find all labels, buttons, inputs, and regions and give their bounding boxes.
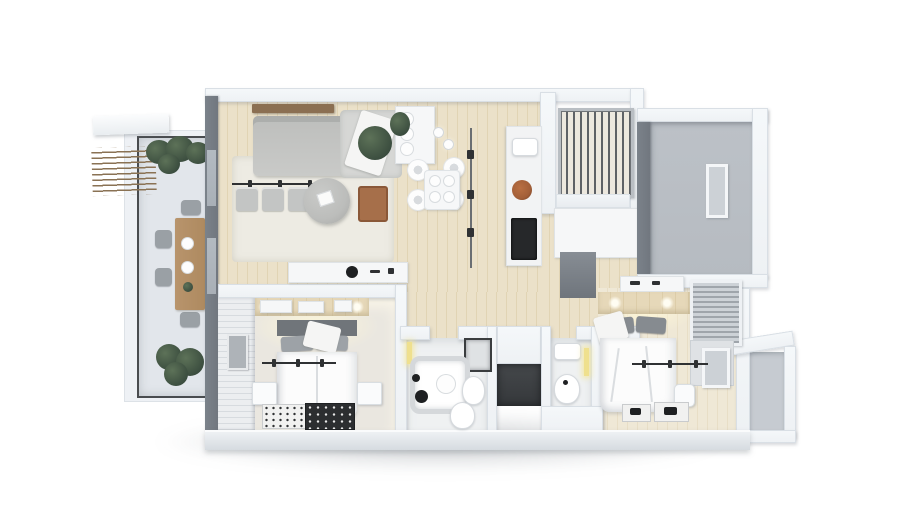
bedroom2-wall-frame xyxy=(702,348,730,388)
window-glass xyxy=(207,150,216,206)
rail-hook xyxy=(642,360,646,368)
radiator-shelf xyxy=(556,194,630,208)
white-overhang-plank xyxy=(93,114,170,136)
top-exterior-wall xyxy=(205,88,639,102)
hall-cabinet-block xyxy=(554,208,642,258)
bidet xyxy=(450,402,475,429)
bedroom1-light-rug xyxy=(262,404,306,429)
outdoor-chair xyxy=(181,200,201,215)
black-stool xyxy=(415,390,428,403)
rail-hook xyxy=(694,360,698,368)
cabinet-dish xyxy=(401,143,413,155)
pendant-light xyxy=(434,128,443,137)
outdoor-chair xyxy=(155,230,172,248)
rail-hook xyxy=(668,360,672,368)
storage-closet-opening xyxy=(497,364,541,406)
window-glass xyxy=(207,238,216,294)
rail-hook xyxy=(296,359,300,367)
nightstand xyxy=(357,382,382,405)
bench-cushion xyxy=(262,187,284,211)
bedroom1-wall-shelf xyxy=(298,301,324,313)
rail-hook xyxy=(320,359,324,367)
outdoor-chair xyxy=(155,268,172,286)
bedroom2-sconce xyxy=(608,296,622,310)
bath-top-wall-segment xyxy=(400,326,430,340)
sideboard-speaker xyxy=(346,266,358,278)
living-bedroom1-divider-wall xyxy=(218,284,400,298)
wall-shelf xyxy=(252,104,334,113)
side-niche-right-wall xyxy=(784,346,796,438)
bedroom1-bath-divider-wall xyxy=(395,284,407,432)
entry-left-wall xyxy=(637,122,650,274)
cabinet-detail xyxy=(652,281,660,285)
kitchen-plant xyxy=(390,112,410,136)
bedroom1-wall-shelf xyxy=(260,300,292,313)
entry-hall-floor xyxy=(650,122,754,276)
track-light-fixture xyxy=(467,190,474,199)
table-plate xyxy=(444,176,454,186)
toilet xyxy=(462,376,485,405)
louvered-wardrobe xyxy=(690,280,742,346)
track-light-fixture xyxy=(467,228,474,237)
sideboard-detail xyxy=(370,270,380,273)
bedroom1-sconce xyxy=(350,300,364,314)
floor-plan-render xyxy=(0,0,900,523)
bedroom1-dark-rug xyxy=(305,403,355,430)
hanging-plant xyxy=(358,126,392,160)
balcony-plant-bottom xyxy=(164,362,188,386)
copper-pan xyxy=(512,180,532,200)
bedside-rug-center xyxy=(630,408,641,415)
bedroom1-wall-shelf xyxy=(334,300,352,312)
toilet xyxy=(554,374,580,404)
table-plate xyxy=(444,192,454,202)
cooktop-oven xyxy=(511,218,537,260)
nightstand xyxy=(252,382,277,405)
balcony-plant-top xyxy=(158,154,180,174)
table-centerpiece-plant xyxy=(183,282,193,292)
bedroom2-sconce xyxy=(660,296,674,310)
entry-right-wall xyxy=(752,108,768,278)
table-plate xyxy=(182,238,193,249)
hall-gray-wall xyxy=(560,252,596,298)
bed2-pillow xyxy=(635,316,666,334)
pendant-light xyxy=(444,140,453,149)
bedroom1-wall-art xyxy=(227,334,248,370)
round-sink xyxy=(437,375,455,393)
closet-back-wall xyxy=(497,326,541,364)
cabinet-detail xyxy=(630,281,640,285)
bath-faucet xyxy=(412,374,420,382)
terracotta-chair xyxy=(358,186,388,222)
track-light-fixture xyxy=(467,150,474,159)
bedside-rug-center xyxy=(664,407,677,415)
bathroom2-sink xyxy=(554,343,581,360)
rail-hook xyxy=(272,359,276,367)
table-plate xyxy=(430,192,440,202)
outdoor-chair xyxy=(180,312,200,327)
kitchen-sink xyxy=(512,138,538,156)
bathroom2-wall-light xyxy=(584,348,589,376)
bench-cushion xyxy=(236,187,258,211)
leaning-mirror xyxy=(706,164,728,218)
table-plate xyxy=(182,262,193,273)
table-plate xyxy=(430,176,440,186)
toilet-flush-detail xyxy=(563,380,568,385)
sideboard-detail xyxy=(388,268,394,274)
entry-top-wall xyxy=(637,108,768,122)
bath2-bottom-wall xyxy=(541,406,603,432)
utility-niche-left-wall xyxy=(540,92,556,214)
dining-table xyxy=(424,170,460,210)
bottom-exterior-wall xyxy=(205,430,750,450)
radiator xyxy=(558,108,634,198)
